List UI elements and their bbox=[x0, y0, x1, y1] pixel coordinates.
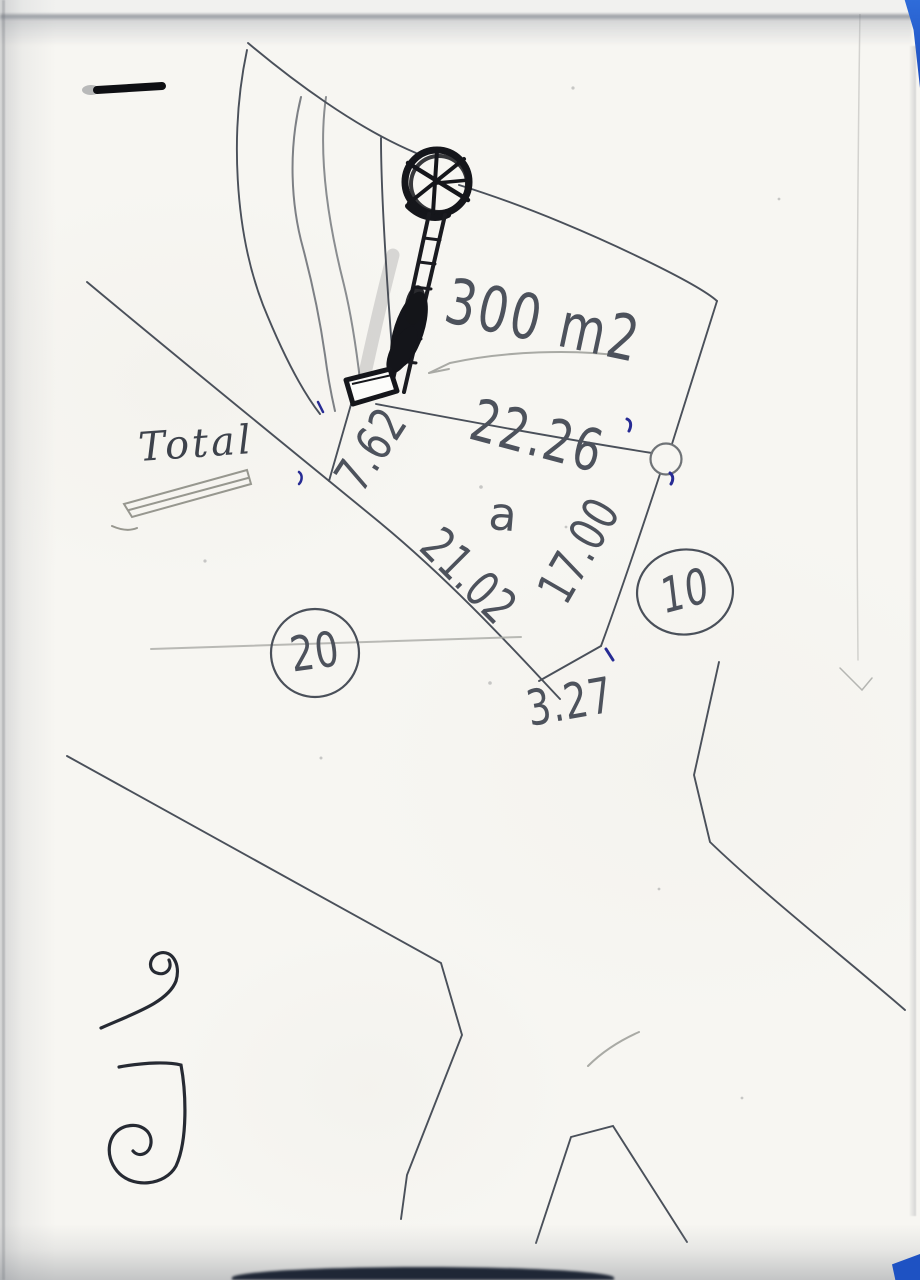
pen-dash-icon bbox=[82, 85, 162, 95]
parcel-number-right: 10 bbox=[658, 561, 712, 622]
pencil-arc bbox=[588, 1032, 639, 1066]
paper-left-shadow bbox=[0, 0, 56, 1280]
parcel-number-left: 20 bbox=[287, 626, 343, 681]
survey-point-icon bbox=[651, 444, 682, 475]
scan-margin-top bbox=[0, 0, 920, 14]
edge-17-00 bbox=[601, 474, 660, 646]
total-strip-sketch bbox=[112, 470, 251, 530]
doodles bbox=[101, 953, 185, 1183]
doodle-spiral bbox=[109, 1063, 185, 1183]
plot-letter-label: a bbox=[487, 490, 519, 538]
right-lower-boundary bbox=[694, 662, 905, 1010]
sketch-lines bbox=[0, 0, 920, 1280]
total-label: Total bbox=[137, 420, 255, 468]
paper-crease bbox=[857, 8, 860, 660]
outer-boundary bbox=[67, 43, 905, 1243]
left-lower-boundary bbox=[67, 756, 462, 1219]
dimension-bottom-edge: 3.27 bbox=[523, 671, 617, 735]
doodle-loop bbox=[101, 953, 177, 1028]
scanned-sketch-page: Total 300 m2 22.26 7.62 a 17.00 21.02 3.… bbox=[0, 0, 920, 1280]
paper-right-shadow bbox=[909, 46, 916, 1216]
paper-left-edge bbox=[2, 0, 5, 1280]
paper-top-shadow bbox=[0, 18, 912, 46]
torn-edge-mark bbox=[840, 668, 872, 690]
